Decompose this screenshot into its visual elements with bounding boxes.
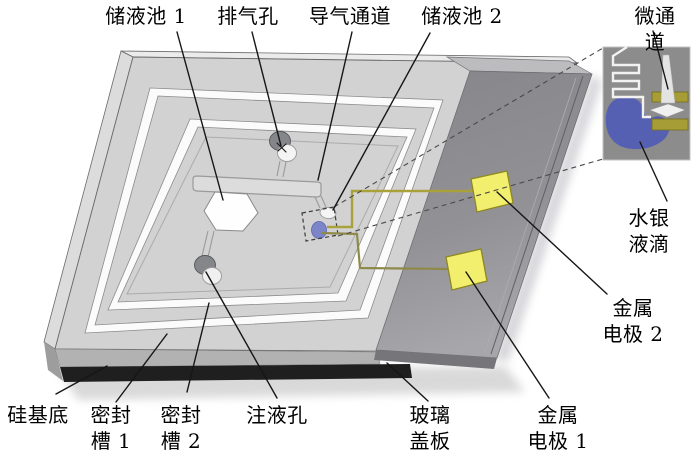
label-gas-channel: 导气通道 bbox=[309, 3, 391, 29]
label-microchannel: 微通道 bbox=[633, 3, 678, 55]
diagram-canvas bbox=[0, 0, 700, 463]
label-reservoir-2: 储液池 2 bbox=[421, 3, 503, 29]
label-silicon-substrate: 硅基底 bbox=[7, 402, 69, 428]
microchannel-inset bbox=[603, 47, 690, 160]
label-seal-groove-2: 密封 槽 2 bbox=[161, 402, 202, 454]
mercury-droplet-on-chip bbox=[312, 222, 327, 239]
figure-microfluidic-chip-diagram: 储液池 1 排气孔 导气通道 储液池 2 微通道 水银液滴 金属 电极 2 金属… bbox=[0, 0, 700, 463]
label-mercury-droplet: 水银液滴 bbox=[624, 205, 675, 257]
label-metal-electrode-2: 金属 电极 2 bbox=[602, 295, 663, 347]
label-glass-cover: 玻璃 盖板 bbox=[410, 402, 451, 454]
label-vent-hole: 排气孔 bbox=[217, 3, 279, 29]
chip-front-face bbox=[55, 349, 380, 367]
inset-electrode-bar-bottom bbox=[652, 119, 688, 130]
label-injection-hole: 注液孔 bbox=[246, 402, 308, 428]
label-metal-electrode-1: 金属 电极 1 bbox=[527, 402, 588, 454]
label-seal-groove-1: 密封 槽 1 bbox=[91, 402, 132, 454]
label-reservoir-1: 储液池 1 bbox=[105, 3, 187, 29]
